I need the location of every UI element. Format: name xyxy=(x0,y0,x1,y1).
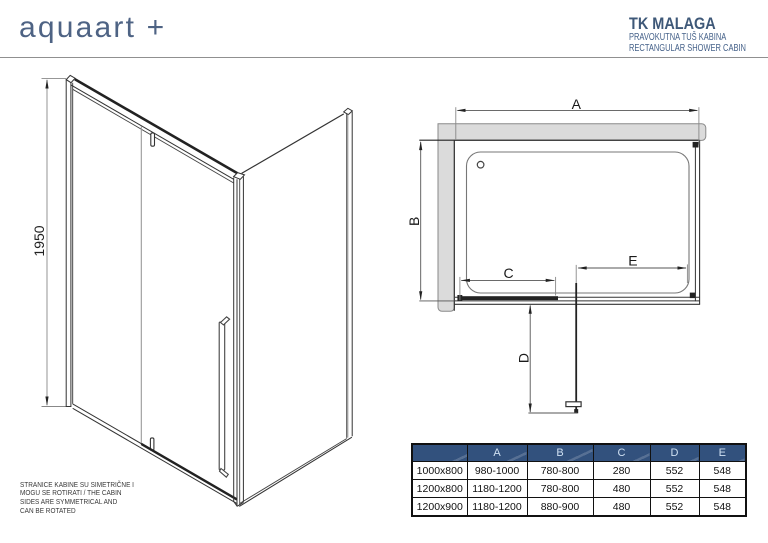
svg-text:E: E xyxy=(628,253,637,269)
svg-text:A: A xyxy=(572,96,582,112)
svg-text:D: D xyxy=(516,353,532,363)
svg-text:C: C xyxy=(503,265,513,281)
svg-text:1950: 1950 xyxy=(31,225,47,256)
svg-text:B: B xyxy=(406,217,422,226)
